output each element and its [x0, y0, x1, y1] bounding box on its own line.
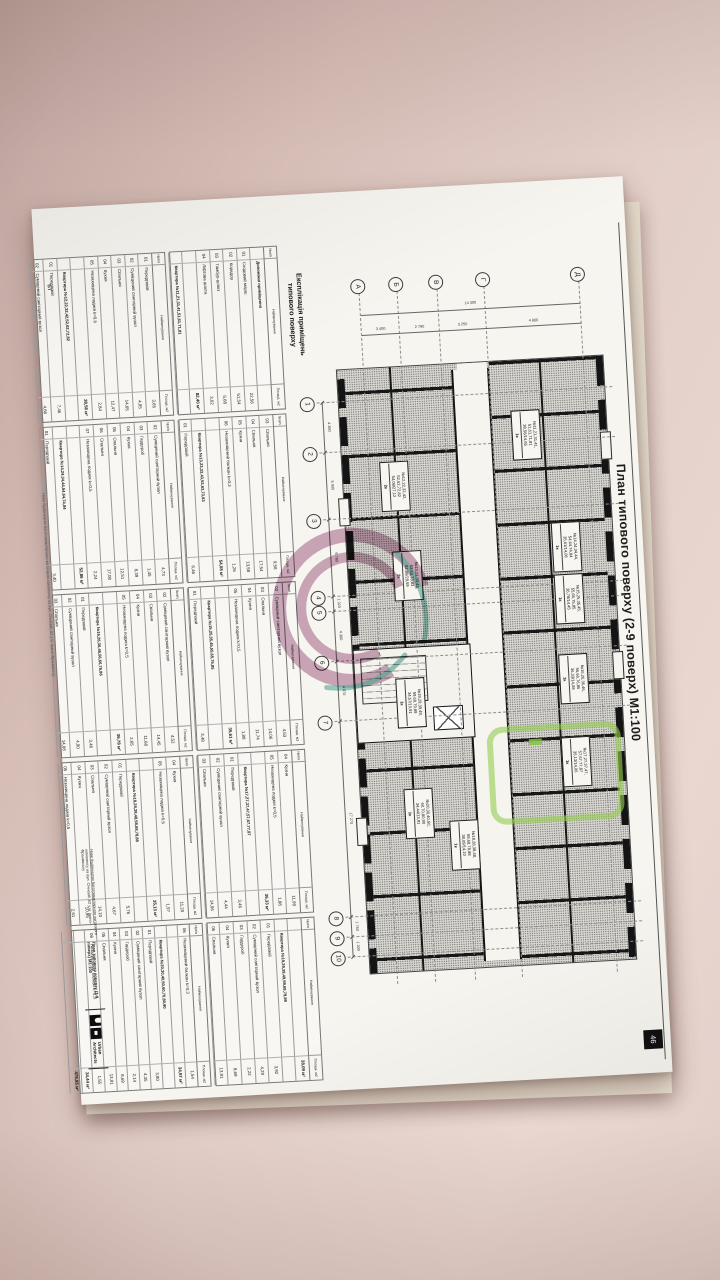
cell-area: 5,76 [120, 897, 134, 923]
header-name: Найменування [166, 433, 177, 558]
cell-area: 4,44 [218, 891, 232, 917]
cell-num [192, 419, 205, 432]
cell-name [172, 937, 179, 1062]
cell-area: 36,33 м² [259, 889, 273, 915]
cell-num: 05 [228, 585, 241, 598]
cell-num: 01 [143, 927, 154, 940]
cell-area: 11,74 [250, 721, 264, 747]
entrance-opening [457, 362, 487, 373]
header-num: №п/п [152, 253, 165, 266]
header-name: Найменування [194, 936, 205, 1061]
cell-area: 4,53 [277, 720, 291, 746]
cell-num: 04 [220, 922, 233, 935]
dim-value: 5 900 [330, 480, 335, 490]
cell-num: 02 [157, 589, 170, 602]
dim-value: 4 380 [327, 422, 332, 432]
cell-num: 01 [178, 420, 191, 433]
cell-num: 02 [62, 594, 75, 607]
cell-num: 06 [219, 417, 232, 430]
cell-num: 02 [148, 421, 161, 434]
floor-plan: 123456789104 3805 9006 7801 3204 3804 07… [279, 182, 668, 1080]
cell-area [65, 395, 79, 421]
cell-num: 03 [256, 584, 269, 597]
dim-value: 17 270 [349, 812, 354, 824]
cell-num [166, 925, 177, 938]
apartment-label: №19,29,39,49,59,69,79,8934,57/13,911к [395, 677, 426, 729]
highlighter-mark [486, 720, 625, 825]
cell-area [61, 563, 75, 589]
header-num: №п/п [190, 924, 203, 937]
logo-letter-u-icon [90, 1015, 102, 1027]
cell-area: 1,26 [227, 554, 241, 580]
cell-area: 2,14 [128, 1065, 140, 1091]
dimension-line-left-segments [362, 323, 582, 336]
cell-area: 7,46 [51, 396, 65, 422]
dim-value: 1 760 [355, 921, 360, 931]
title-block-divider [85, 1008, 105, 1010]
axis-letter-Д: Д [570, 266, 586, 282]
cell-area: 478,85 м² [70, 1068, 82, 1094]
cell-num: 05 [84, 257, 97, 270]
cell-num: 03 [210, 250, 223, 263]
cell-area [245, 890, 259, 916]
cell-area [282, 1056, 296, 1082]
cell-num: 01 [237, 248, 250, 261]
cell-num: 04 [242, 584, 255, 597]
cell-num: 02 [269, 583, 282, 596]
header-num: №п/п [264, 247, 277, 260]
apartment-label: №16,26,36,46,56,66,76,8636,33/14,081к [558, 653, 589, 705]
cell-area: 3,80 [151, 1063, 163, 1089]
header-area: Площа, м2 [160, 390, 173, 416]
cell-area [97, 730, 111, 756]
cell-num: 05 [153, 758, 166, 771]
dim-value: 6 780 [334, 552, 339, 562]
cell-area: 1,97 [161, 894, 175, 920]
cell-area: 35,13 м² [147, 895, 161, 921]
cell-area: 22,56 [244, 385, 258, 411]
cell-num: 01 [224, 754, 237, 767]
cell-name: Квартира №15,25,35,45,55,65,75,85 [206, 599, 217, 724]
dim-value: 1 320 [337, 598, 342, 608]
cell-area [162, 1063, 174, 1089]
cell-area: 38,56 м² [78, 394, 92, 420]
cell-num: 03 [260, 415, 273, 428]
cell-num: 05 [117, 591, 130, 604]
cell-num [103, 592, 116, 605]
balcony [356, 817, 369, 846]
cell-num: 07 [80, 425, 93, 438]
axis-number-2: 2 [302, 446, 318, 462]
cell-num: 04 [98, 256, 111, 269]
title-block-sheet-name: План типового поверху (2-9 поверх) М1:10… [86, 942, 100, 1004]
cell-area: 4,73 [156, 558, 170, 584]
balcony [612, 651, 625, 680]
cell-num: 02 [125, 254, 138, 267]
cell-num: 01 [44, 259, 57, 272]
cell-name: Квартира №17,27,37,47,57,67,77,87 [243, 765, 254, 890]
logo-letter-a-icon [91, 1027, 103, 1039]
urban-architects-logo: Urban Architects [90, 1015, 104, 1064]
cell-num [66, 426, 79, 439]
cell-num: 01 [39, 427, 52, 440]
cell-area: 14,06 [263, 720, 277, 746]
cell-area: 3,48 [83, 730, 97, 756]
cell-area: 4,66 [38, 396, 52, 422]
cell-num: 05 [233, 417, 246, 430]
explication-column-1: №п/пНайменуванняПлоща, м2Допоміжні примі… [169, 246, 286, 416]
cell-num: 02 [30, 260, 43, 273]
cell-area: 82,40 м² [190, 388, 204, 414]
cell-area [134, 896, 148, 922]
dim-value: 3 250 [458, 322, 468, 327]
cell-area [209, 723, 223, 749]
cell-area: 3,65 [146, 390, 160, 416]
cell-name: Допоміжні приміщення [255, 260, 266, 385]
cell-area: 5,68 [217, 386, 231, 412]
cell-num: 01 [139, 254, 152, 267]
cell-area: 1,54 [186, 1061, 198, 1087]
cell-name [222, 598, 229, 723]
title-block-scale: М1:100 [87, 959, 93, 973]
cell-area: 2,22 [241, 1058, 255, 1084]
cell-num: 02 [247, 921, 260, 934]
header-num: №п/п [283, 582, 296, 595]
header-area: Площа, м2 [169, 557, 182, 583]
header-name: Найменування [185, 768, 196, 893]
header-name: Найменування [278, 427, 289, 552]
explication-column-9: №п/пНайменуванняПлоща, м238,09 м²Квартир… [207, 917, 324, 1087]
balcony [338, 498, 351, 527]
document-content: План типового поверху (2-9 поверх) М1:10… [36, 182, 668, 1093]
cell-num: 03 [85, 761, 98, 774]
cell-area: 11,99 [286, 887, 300, 913]
cell-area: 4,95 [133, 391, 147, 417]
cell-num [250, 247, 263, 260]
cell-num [251, 752, 264, 765]
axis-letter-Г: Г [475, 272, 491, 288]
header-area: Площа, м2 [197, 1061, 210, 1087]
axis-number-3: 3 [306, 513, 322, 529]
cell-num: 01 [188, 587, 201, 600]
header-name: Найменування [176, 601, 187, 726]
cell-area: 1,88 [236, 722, 250, 748]
dim-value: 3 400 [376, 327, 386, 332]
explication-column-6: №п/пНайменуванняПлоща, м202Суміщений сан… [52, 587, 193, 758]
cell-num [57, 258, 70, 271]
cell-name: Квартира №16,26,36,46,56,66,76,86 [94, 605, 105, 730]
cell-num: 03 [111, 255, 124, 268]
cell-name: Квартира №14,24,34,44,54,64,74,84 [58, 439, 69, 564]
axis-number-1: 1 [299, 396, 315, 412]
highlighter-dot [529, 739, 542, 746]
cell-area: 9,58 [267, 552, 281, 578]
cell-num: 04 [196, 250, 209, 263]
cell-num [201, 587, 214, 600]
cell-num [238, 753, 251, 766]
header-num: №п/п [161, 421, 174, 434]
header-area: Площа, м2 [281, 551, 294, 577]
axis-letter-В: В [428, 274, 444, 290]
cell-area: 13,91 [214, 1060, 228, 1086]
cell-num: 05 [265, 751, 278, 764]
cell-area: 35,61 м² [222, 723, 236, 749]
cell-num: 02 [99, 761, 112, 774]
cell-num: 02 [132, 927, 143, 940]
header-num: №п/п [292, 750, 305, 763]
cell-area: 36,78 м² [111, 729, 125, 755]
axis-number-5: 5 [311, 605, 327, 621]
axis-letter-Б: Б [388, 277, 404, 293]
cell-num: 04 [108, 928, 119, 941]
cell-num [288, 918, 301, 931]
cell-num: 03 [234, 921, 247, 934]
dim-value: 4 380 [338, 631, 343, 641]
apartment-label: №15,25,35,45,55,65,75,8536,78/14,451к [554, 573, 585, 625]
cell-num [140, 758, 153, 771]
header-area: Площа, м2 [309, 1054, 322, 1080]
cell-area: 17,08 [101, 561, 115, 587]
apartment-label: №12,22,32,42,52,62,72,8254,08/27,122к [379, 461, 410, 513]
cell-name [78, 270, 85, 395]
apartment-label: №18,28,38,48,58,68,78,8838,09/14,101к [449, 819, 480, 871]
cell-area: 6,46 [186, 556, 200, 582]
cell-num: 06 [178, 925, 189, 938]
cell-num [169, 252, 182, 265]
apartment-label: №20,30,40,50,60,70,80,9034,44/13,911к [404, 788, 435, 840]
cell-num [126, 759, 139, 772]
header-name: Найменування [306, 930, 317, 1055]
cell-num [182, 251, 195, 264]
dim-value: 2 790 [415, 324, 425, 329]
cell-name: Квартира №12,22,32,42,52,62,72,82 [62, 270, 73, 395]
cell-area: 11,68 [138, 727, 152, 753]
axis-number-6: 6 [314, 655, 330, 671]
dim-value: 4 860 [529, 318, 539, 323]
cell-name [212, 430, 219, 555]
cell-area: 14,65 [119, 392, 133, 418]
explication-column-5: №п/пНайменуванняПлоща, м202Суміщений сан… [188, 581, 305, 751]
header-area: Площа, м2 [290, 719, 303, 745]
cell-num: 03 [144, 590, 157, 603]
header-name: Найменування [157, 265, 168, 390]
title-block-project: Нове будівництво багатоквартирного житло… [79, 849, 99, 938]
header-area: Площа, м2 [300, 887, 313, 913]
cell-area: 38,09 м² [296, 1055, 310, 1081]
cell-num [274, 919, 287, 932]
cell-area: 8,39 [128, 560, 142, 586]
axis-number-7: 7 [317, 715, 333, 731]
axis-number-8: 8 [328, 910, 344, 926]
cell-name: Квартира №11,21,31,41,51,61,71,81 [174, 264, 185, 389]
cell-num: 03 [197, 755, 210, 768]
cell-area: 51,54 [231, 386, 245, 412]
cell-area: 12,47 [105, 393, 119, 419]
header-area: Площа, м2 [188, 893, 201, 919]
apartment-label: №11,21,31,41,51,61,71,8138,56/14,651к [511, 409, 542, 461]
cell-area: 4,35 [139, 1064, 151, 1090]
logo-caption: Urban Architects [92, 1042, 103, 1064]
cell-area [177, 389, 191, 415]
cell-num: 04 [72, 762, 85, 775]
cell-num: 05 [58, 763, 71, 776]
header-num: №п/п [301, 918, 314, 931]
cell-num: 03 [120, 928, 131, 941]
cell-num: 04 [121, 423, 134, 436]
cell-area: 14,06 [205, 892, 219, 918]
cell-area: 4,67 [106, 897, 120, 923]
cell-area: 11,20 [174, 894, 188, 920]
cell-num: 01 [112, 760, 125, 773]
explication-column-4: №п/пНайменуванняПлоща, м202Суміщений сан… [43, 420, 184, 591]
cell-area: 34,57 м² [174, 1062, 186, 1088]
header-area: Площа, м2 [178, 725, 191, 751]
cell-num: 05 [206, 923, 219, 936]
dim-value: 1 300 [356, 941, 361, 951]
cell-area: 3,92 [268, 1057, 282, 1083]
axis-letter-А: А [350, 279, 366, 295]
cell-num: 04 [278, 751, 291, 764]
cell-name [295, 931, 302, 1056]
cell-area: 3,48 [195, 724, 209, 750]
cell-name [258, 764, 265, 889]
header-name: Найменування [287, 594, 298, 719]
cell-area: 52,86 м² [74, 563, 88, 589]
cell-area: 54,08 м² [213, 555, 227, 581]
cell-area: 3,02 [204, 387, 218, 413]
cell-area: 8,69 [116, 1065, 128, 1091]
apartment-label: №13,23,33,43,53,63,73,8352,86/29,592к [392, 550, 423, 602]
cell-area [258, 384, 272, 410]
cell-area: 2,24 [88, 562, 102, 588]
header-area: Площа, м2 [272, 383, 285, 409]
header-num: №п/п [273, 414, 286, 427]
cell-area: 13,58 [240, 553, 254, 579]
header-name: Найменування [269, 259, 280, 384]
title-block-divider [89, 1068, 109, 1070]
cell-area: 2,84 [92, 393, 106, 419]
cell-area: 3,46 [232, 890, 246, 916]
cell-area: 12,51 [115, 560, 129, 586]
explication-column-3: №п/пНайменуванняПлоща, м203Спальня9,5804… [178, 413, 295, 583]
axis-number-4: 4 [310, 590, 326, 606]
drawing-sheet: План типового поверху (2-9 поверх) М1:10… [31, 176, 672, 1105]
cell-num: 01 [76, 594, 89, 607]
header-num: №п/п [171, 588, 184, 601]
cell-area: 14,45 [151, 727, 165, 753]
header-num: №п/п [180, 756, 193, 769]
cell-area: 4,52 [165, 726, 179, 752]
dim-total-value: 14 300 [464, 301, 476, 306]
cell-name [68, 943, 75, 1068]
cell-name [73, 438, 80, 563]
cell-area: 4,90 [70, 731, 84, 757]
cell-area [200, 556, 214, 582]
cell-area: 2,65 [124, 728, 138, 754]
cell-num: 01 [261, 920, 274, 933]
cell-num [71, 257, 84, 270]
cell-name: Квартира №18,28,38,48,58,68,78,88 [131, 771, 142, 896]
cell-num [89, 593, 102, 606]
cell-area: 8,69 [228, 1059, 242, 1085]
axis-number-10: 10 [330, 950, 346, 966]
cell-num: 04 [167, 757, 180, 770]
axis-number-9: 9 [329, 930, 345, 946]
cell-num: 04 [130, 591, 143, 604]
explication-column-7: №п/пНайменуванняПлоща, м204Кухня11,9905Н… [197, 749, 314, 919]
cell-num [53, 427, 66, 440]
cell-name [110, 604, 117, 729]
cell-num: 03 [134, 422, 147, 435]
cell-num: 06 [94, 424, 107, 437]
cell-area: 17,54 [254, 553, 268, 579]
cell-num [155, 926, 166, 939]
cell-area: 4,29 [255, 1057, 269, 1083]
cell-name: Квартира №13,23,33,43,53,63,73,83 [197, 431, 208, 556]
explication-column-2: №п/пНайменуванняПлоща, м201Передпокій3,6… [33, 252, 174, 423]
cell-area: 1,45 [142, 559, 156, 585]
cell-area: 14,08 [56, 732, 70, 758]
cell-num: 05 [107, 424, 120, 437]
apartment-label: №14,24,34,44,54,64,74,8435,61/14,061к [551, 521, 582, 573]
cell-name [146, 771, 153, 896]
dim-value: 4 070 [342, 686, 347, 696]
cell-num [205, 418, 218, 431]
cell-num [62, 931, 73, 944]
margin-stamp: БТ [46, 284, 52, 291]
header-name: Найменування [297, 762, 308, 887]
cell-area: 1,88 [273, 888, 287, 914]
cell-name [189, 263, 196, 388]
cell-num [215, 586, 228, 599]
cell-num: 02 [211, 754, 224, 767]
cell-num: 04 [246, 416, 259, 429]
cell-name: Квартира №19,29,39,49,59,69,79,89 [279, 931, 290, 1056]
cell-num: 02 [223, 249, 236, 262]
